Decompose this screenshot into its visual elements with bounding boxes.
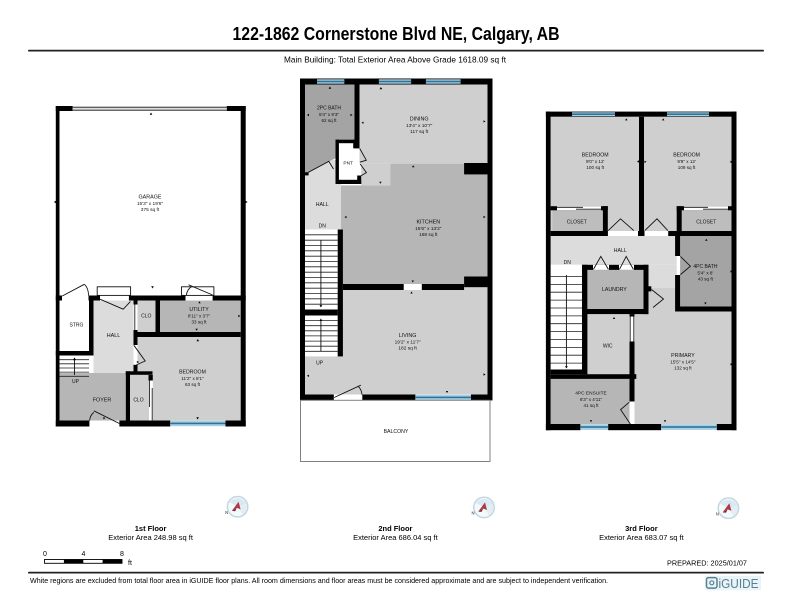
- svg-text:109 sq ft: 109 sq ft: [678, 165, 696, 170]
- svg-text:6'3" x 4'11": 6'3" x 4'11": [580, 397, 603, 402]
- svg-text:8'11" x 3'7": 8'11" x 3'7": [188, 313, 211, 318]
- svg-text:GARAGE: GARAGE: [138, 195, 161, 201]
- svg-text:100 sq ft: 100 sq ft: [586, 165, 604, 170]
- svg-text:43 sq ft: 43 sq ft: [698, 277, 714, 282]
- svg-text:UP: UP: [72, 379, 80, 385]
- svg-text:ft: ft: [128, 560, 132, 567]
- svg-text:132 sq ft: 132 sq ft: [674, 366, 692, 371]
- svg-text:DINING: DINING: [410, 117, 429, 123]
- svg-text:19'2" x 11'7": 19'2" x 11'7": [395, 339, 421, 345]
- svg-text:DN: DN: [319, 224, 327, 230]
- svg-text:33 sq ft: 33 sq ft: [191, 320, 207, 325]
- svg-text:iGUIDE: iGUIDE: [719, 576, 759, 591]
- svg-text:8: 8: [120, 551, 124, 558]
- svg-text:62 sq ft: 62 sq ft: [321, 118, 337, 123]
- svg-text:UTILITY: UTILITY: [189, 307, 209, 313]
- svg-text:0: 0: [43, 551, 47, 558]
- svg-text:Exterior Area 683.07 sq ft: Exterior Area 683.07 sq ft: [599, 533, 685, 542]
- svg-text:FOYER: FOYER: [93, 398, 112, 404]
- svg-text:BEDROOM: BEDROOM: [673, 153, 700, 159]
- svg-text:11'2" x 8'1": 11'2" x 8'1": [181, 376, 204, 381]
- svg-text:CLOSET: CLOSET: [696, 220, 716, 226]
- svg-text:9'0" x 12': 9'0" x 12': [586, 159, 605, 164]
- svg-text:White regions are excluded fro: White regions are excluded from total fl…: [30, 576, 608, 585]
- svg-text:1st Floor: 1st Floor: [135, 524, 167, 533]
- svg-text:122-1862 Cornerstone Blvd NE,: 122-1862 Cornerstone Blvd NE, Calgary, A…: [233, 23, 560, 44]
- svg-text:BALCONY: BALCONY: [384, 429, 409, 435]
- svg-text:3rd Floor: 3rd Floor: [625, 524, 658, 533]
- svg-text:BEDROOM: BEDROOM: [582, 153, 609, 159]
- svg-text:13'4" x 10'7": 13'4" x 10'7": [406, 123, 433, 129]
- svg-text:5'4" x 8': 5'4" x 8': [697, 270, 713, 275]
- svg-text:LIVING: LIVING: [399, 333, 417, 339]
- svg-text:HALL: HALL: [107, 333, 121, 339]
- svg-text:LAUNDRY: LAUNDRY: [602, 287, 627, 293]
- svg-text:4PC ENSUITE: 4PC ENSUITE: [575, 391, 606, 397]
- svg-text:117 sq ft: 117 sq ft: [410, 129, 429, 135]
- svg-text:CLOSET: CLOSET: [567, 220, 587, 226]
- svg-text:CLO: CLO: [133, 398, 143, 404]
- svg-text:N: N: [716, 511, 719, 516]
- svg-text:PNT: PNT: [343, 161, 353, 167]
- svg-text:15'6" x 13'2": 15'6" x 13'2": [415, 226, 442, 232]
- svg-text:WIC: WIC: [603, 344, 613, 350]
- svg-text:2nd Floor: 2nd Floor: [378, 524, 412, 533]
- svg-text:CLO: CLO: [141, 314, 151, 320]
- svg-text:4PC BATH: 4PC BATH: [693, 264, 717, 270]
- svg-text:2PC BATH: 2PC BATH: [317, 106, 341, 112]
- svg-text:Main Building: Total Exterior: Main Building: Total Exterior Area Above…: [284, 54, 507, 64]
- svg-text:HALL: HALL: [316, 202, 329, 208]
- svg-text:BEDROOM: BEDROOM: [179, 370, 206, 376]
- svg-text:PRIMARY: PRIMARY: [671, 353, 695, 359]
- svg-text:63 sq ft: 63 sq ft: [185, 382, 201, 387]
- svg-text:5'4" x 9'3": 5'4" x 9'3": [319, 112, 339, 117]
- svg-text:41 sq ft: 41 sq ft: [583, 403, 599, 408]
- svg-text:UP: UP: [316, 360, 324, 366]
- svg-text:N: N: [471, 511, 474, 516]
- svg-text:KITCHEN: KITCHEN: [416, 220, 440, 226]
- svg-text:Exterior Area 248.98 sq ft: Exterior Area 248.98 sq ft: [108, 533, 194, 542]
- svg-text:15'5" x 14'5": 15'5" x 14'5": [670, 359, 696, 364]
- svg-text:15'3" x 19'6": 15'3" x 19'6": [137, 201, 164, 207]
- svg-text:4: 4: [82, 551, 86, 558]
- svg-text:168 sq ft: 168 sq ft: [419, 232, 438, 238]
- svg-text:375 sq ft: 375 sq ft: [141, 207, 160, 213]
- svg-text:PREPARED: 2025/01/07: PREPARED: 2025/01/07: [667, 559, 747, 568]
- svg-text:9'8" x 12': 9'8" x 12': [677, 159, 696, 164]
- svg-text:Exterior Area 686.04 sq ft: Exterior Area 686.04 sq ft: [353, 533, 439, 542]
- svg-text:HALL: HALL: [614, 248, 627, 254]
- svg-text:N: N: [225, 510, 228, 515]
- svg-text:STRG: STRG: [70, 323, 84, 329]
- svg-text:182 sq ft: 182 sq ft: [398, 346, 417, 352]
- svg-text:DN: DN: [564, 260, 572, 266]
